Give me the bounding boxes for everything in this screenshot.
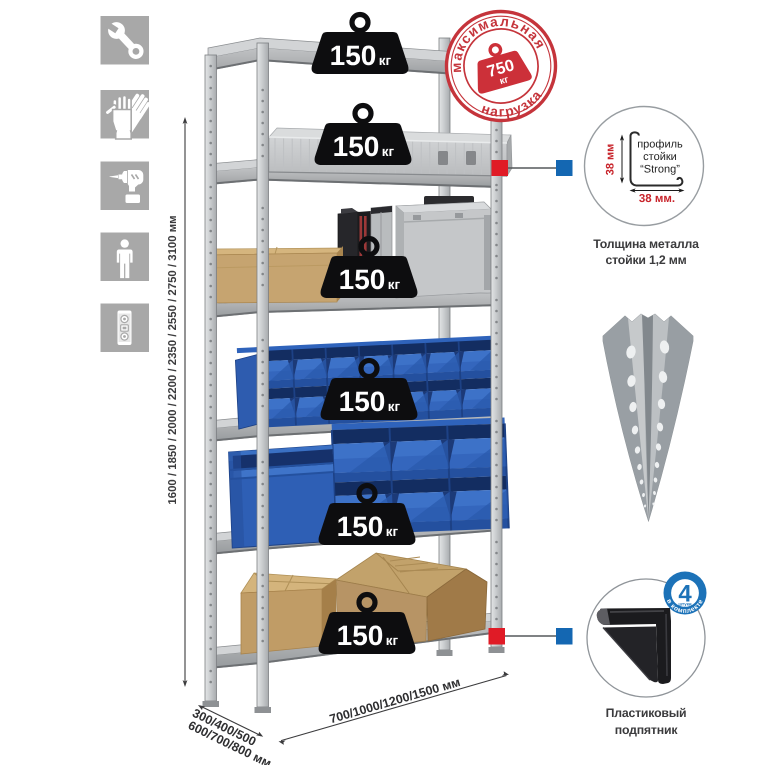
- svg-text:кг: кг: [388, 277, 401, 292]
- svg-text:профиль: профиль: [637, 139, 683, 151]
- svg-text:150: 150: [337, 511, 384, 542]
- svg-text:“Strong”: “Strong”: [640, 164, 680, 176]
- svg-text:стойки 1,2 мм: стойки 1,2 мм: [605, 253, 686, 267]
- svg-text:150: 150: [330, 40, 377, 71]
- svg-text:Пластиковый: Пластиковый: [606, 706, 687, 720]
- svg-text:150: 150: [339, 386, 386, 417]
- svg-text:штуки: штуки: [678, 602, 692, 607]
- svg-text:1600 / 1850 / 2000 / 2200 / 23: 1600 / 1850 / 2000 / 2200 / 2350 / 2550 …: [167, 215, 179, 504]
- svg-text:кг: кг: [388, 399, 401, 414]
- svg-text:150: 150: [337, 620, 384, 651]
- svg-text:38 мм.: 38 мм.: [639, 193, 675, 205]
- svg-text:38 мм: 38 мм: [605, 144, 617, 176]
- svg-text:подпятник: подпятник: [615, 723, 679, 737]
- svg-text:кг: кг: [379, 53, 392, 68]
- svg-text:кг: кг: [386, 633, 399, 648]
- svg-text:кг: кг: [386, 524, 399, 539]
- svg-text:кг: кг: [382, 144, 395, 159]
- svg-text:стойки: стойки: [643, 151, 677, 163]
- svg-text:Толщина металла: Толщина металла: [593, 237, 699, 251]
- svg-text:150: 150: [339, 264, 386, 295]
- svg-text:150: 150: [333, 131, 380, 162]
